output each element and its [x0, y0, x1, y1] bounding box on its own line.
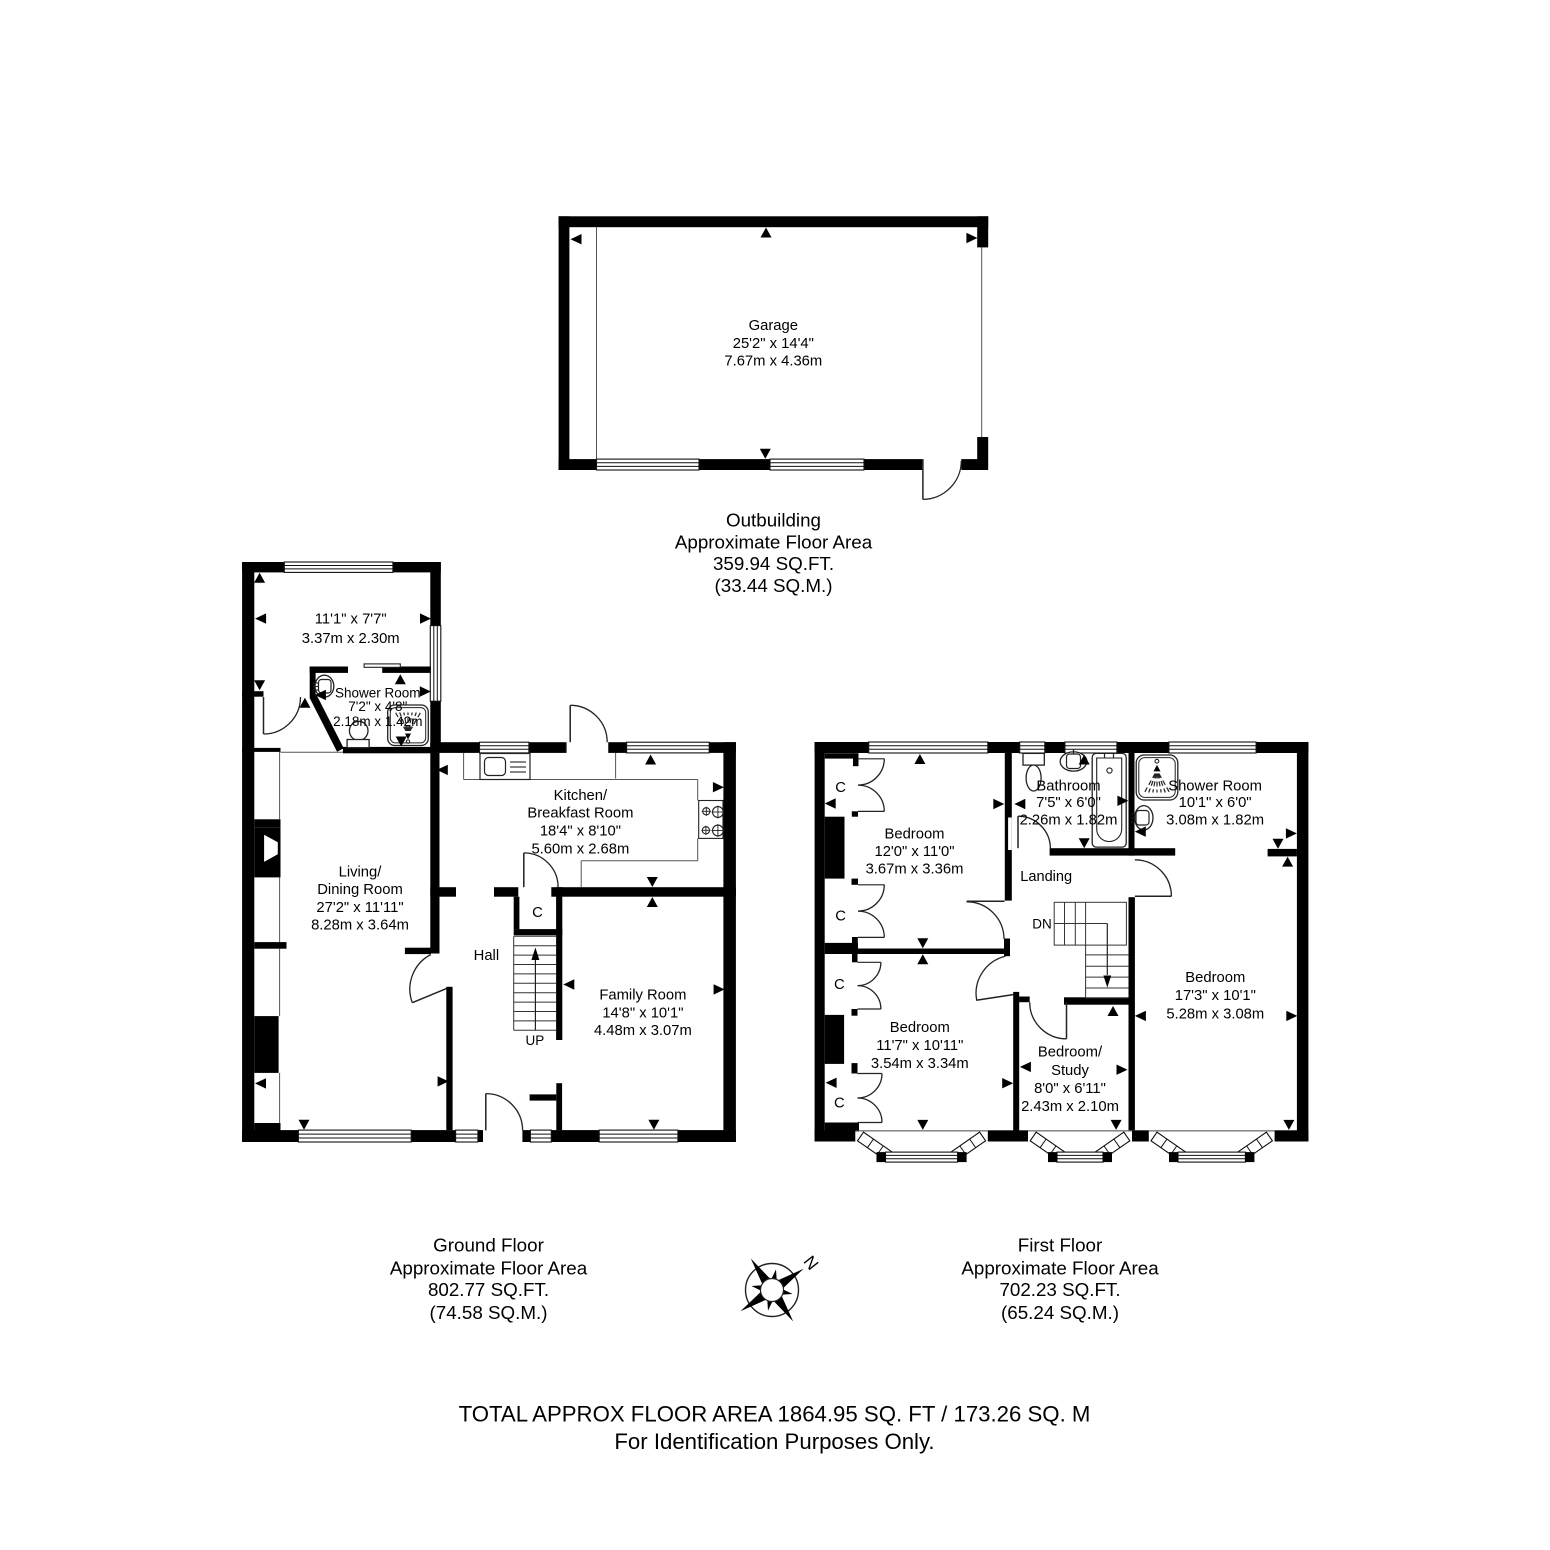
svg-text:Shower Room: Shower Room: [1168, 779, 1262, 795]
svg-text:11'7" x 10'11": 11'7" x 10'11": [876, 1038, 963, 1054]
svg-text:Bedroom/: Bedroom/: [1038, 1045, 1103, 1061]
svg-text:Dining Room: Dining Room: [317, 882, 403, 898]
svg-text:Approximate Floor Area: Approximate Floor Area: [390, 1258, 588, 1279]
svg-text:27'2" x 11'11": 27'2" x 11'11": [316, 900, 403, 916]
svg-text:12'0" x 11'0": 12'0" x 11'0": [874, 844, 954, 860]
svg-text:Ground Floor: Ground Floor: [433, 1235, 544, 1256]
svg-text:First Floor: First Floor: [1018, 1235, 1103, 1256]
svg-text:Bedroom: Bedroom: [884, 826, 944, 842]
svg-text:C: C: [834, 977, 845, 993]
svg-text:C: C: [835, 780, 846, 796]
svg-text:C: C: [835, 908, 846, 924]
svg-text:UP: UP: [526, 1033, 545, 1048]
svg-text:C: C: [834, 1096, 845, 1112]
svg-text:Bedroom: Bedroom: [1185, 970, 1245, 986]
svg-text:10'1" x 6'0": 10'1" x 6'0": [1179, 795, 1252, 811]
svg-text:Kitchen/: Kitchen/: [554, 788, 608, 804]
svg-text:Hall: Hall: [474, 948, 500, 964]
svg-text:5.60m x 2.68m: 5.60m x 2.68m: [531, 841, 629, 857]
svg-text:7'5" x 6'0": 7'5" x 6'0": [1036, 795, 1101, 811]
svg-text:25'2" x 14'4": 25'2" x 14'4": [733, 336, 814, 352]
svg-text:Garage: Garage: [749, 318, 798, 334]
svg-text:(65.24 SQ.M.): (65.24 SQ.M.): [1001, 1302, 1119, 1323]
svg-text:Family Room: Family Room: [599, 988, 686, 1004]
svg-text:4.48m x 3.07m: 4.48m x 3.07m: [594, 1023, 692, 1039]
svg-text:11'1" x 7'7": 11'1" x 7'7": [315, 612, 387, 628]
svg-text:8.28m x 3.64m: 8.28m x 3.64m: [311, 918, 409, 934]
svg-text:3.67m x 3.36m: 3.67m x 3.36m: [866, 862, 964, 878]
svg-text:TOTAL APPROX FLOOR AREA 1864.9: TOTAL APPROX FLOOR AREA 1864.95 SQ. FT /…: [459, 1402, 1091, 1427]
svg-text:Study: Study: [1051, 1063, 1089, 1079]
svg-text:3.37m x 2.30m: 3.37m x 2.30m: [302, 631, 400, 647]
svg-text:802.77 SQ.FT.: 802.77 SQ.FT.: [428, 1279, 549, 1300]
svg-text:8'0" x 6'11": 8'0" x 6'11": [1034, 1081, 1106, 1097]
svg-text:C: C: [532, 905, 543, 921]
svg-text:Bedroom: Bedroom: [890, 1020, 950, 1036]
svg-text:DN: DN: [1032, 917, 1052, 932]
svg-text:(74.58 SQ.M.): (74.58 SQ.M.): [430, 1302, 548, 1323]
svg-text:702.23 SQ.FT.: 702.23 SQ.FT.: [999, 1279, 1120, 1300]
svg-text:2.26m x 1.82m: 2.26m x 1.82m: [1020, 812, 1118, 828]
svg-text:2.18m x 1.42m: 2.18m x 1.42m: [333, 714, 422, 729]
svg-text:Living/: Living/: [339, 864, 383, 880]
svg-text:14'8" x 10'1": 14'8" x 10'1": [602, 1005, 683, 1021]
svg-text:18'4" x 8'10": 18'4" x 8'10": [540, 823, 621, 839]
svg-text:359.94 SQ.FT.: 359.94 SQ.FT.: [713, 553, 834, 574]
svg-text:For Identification Purposes On: For Identification Purposes Only.: [614, 1429, 934, 1454]
svg-text:7'2" x 4'8": 7'2" x 4'8": [348, 699, 407, 714]
svg-text:Bathroom: Bathroom: [1036, 779, 1100, 795]
svg-text:2.43m x 2.10m: 2.43m x 2.10m: [1021, 1099, 1119, 1115]
svg-text:3.54m x 3.34m: 3.54m x 3.34m: [871, 1056, 969, 1072]
svg-text:7.67m x 4.36m: 7.67m x 4.36m: [724, 353, 822, 369]
svg-text:Landing: Landing: [1020, 869, 1072, 885]
svg-text:Outbuilding: Outbuilding: [726, 510, 821, 531]
svg-text:(33.44 SQ.M.): (33.44 SQ.M.): [715, 575, 833, 596]
svg-text:Approximate Floor Area: Approximate Floor Area: [675, 531, 873, 552]
svg-text:3.08m x 1.82m: 3.08m x 1.82m: [1166, 812, 1264, 828]
svg-text:Approximate Floor Area: Approximate Floor Area: [961, 1258, 1159, 1279]
svg-text:17'3" x 10'1": 17'3" x 10'1": [1175, 988, 1256, 1004]
svg-text:Breakfast Room: Breakfast Room: [527, 805, 633, 821]
svg-text:5.28m x 3.08m: 5.28m x 3.08m: [1166, 1006, 1264, 1022]
